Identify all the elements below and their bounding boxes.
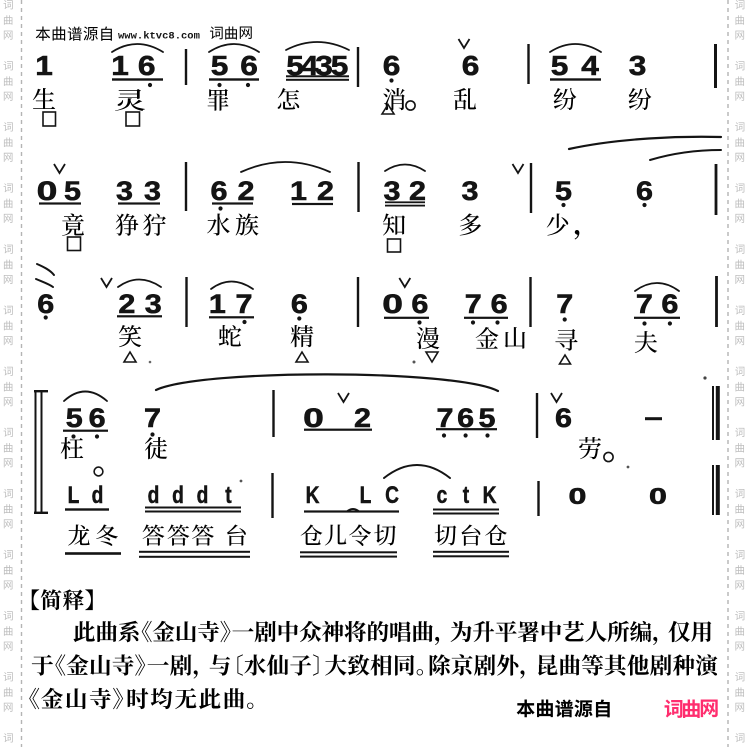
svg-text:6: 6 — [661, 290, 678, 320]
svg-text:5: 5 — [64, 177, 81, 207]
svg-text:3: 3 — [145, 290, 162, 320]
svg-text:2: 2 — [238, 177, 255, 207]
svg-text:6: 6 — [291, 290, 308, 320]
svg-text:7: 7 — [236, 290, 253, 320]
svg-text:7: 7 — [144, 404, 161, 434]
svg-text:c: c — [437, 481, 448, 509]
svg-text:3: 3 — [144, 177, 161, 207]
svg-text:0: 0 — [569, 483, 587, 508]
svg-text:7: 7 — [465, 290, 482, 320]
svg-text:1: 1 — [35, 51, 53, 82]
svg-text:5: 5 — [66, 404, 83, 434]
svg-text:C: C — [385, 481, 399, 509]
svg-text:5: 5 — [211, 51, 229, 82]
svg-text:1: 1 — [209, 290, 226, 320]
svg-text:1: 1 — [290, 177, 307, 207]
svg-text:d: d — [172, 481, 184, 509]
svg-text:6: 6 — [37, 290, 54, 320]
svg-text:6: 6 — [491, 290, 508, 320]
svg-text:L: L — [360, 481, 372, 509]
svg-text:t: t — [225, 481, 231, 509]
svg-text:0: 0 — [303, 403, 324, 433]
svg-text:6: 6 — [211, 177, 228, 207]
svg-text:6: 6 — [240, 51, 258, 82]
svg-text:0: 0 — [649, 483, 667, 508]
svg-text:3: 3 — [462, 177, 479, 207]
svg-text:L: L — [68, 481, 80, 509]
svg-text:4: 4 — [581, 51, 599, 82]
svg-text:5: 5 — [551, 51, 569, 82]
svg-text:6: 6 — [383, 51, 401, 82]
svg-text:0: 0 — [37, 176, 58, 206]
svg-text:d: d — [148, 481, 160, 509]
svg-text:t: t — [463, 481, 469, 509]
svg-text:K: K — [306, 481, 320, 509]
svg-text:1: 1 — [111, 51, 129, 82]
svg-text:d: d — [197, 481, 209, 509]
svg-text:3: 3 — [629, 51, 647, 82]
svg-text:7: 7 — [556, 290, 573, 320]
svg-text:6: 6 — [555, 404, 572, 434]
svg-text:K: K — [483, 481, 497, 509]
svg-text:2: 2 — [317, 177, 334, 207]
svg-text:6: 6 — [89, 404, 106, 434]
svg-text:6: 6 — [636, 177, 653, 207]
svg-text:0: 0 — [382, 289, 403, 319]
svg-text:6: 6 — [411, 290, 428, 320]
svg-text:d: d — [92, 481, 104, 509]
svg-text:3: 3 — [116, 177, 133, 207]
svg-text:5: 5 — [555, 177, 572, 207]
svg-text:www.ktvc8.com: www.ktvc8.com — [118, 31, 200, 43]
svg-text:6: 6 — [462, 51, 480, 82]
svg-text:7: 7 — [636, 290, 653, 320]
svg-text:6: 6 — [138, 51, 156, 82]
svg-text:2: 2 — [118, 290, 135, 320]
